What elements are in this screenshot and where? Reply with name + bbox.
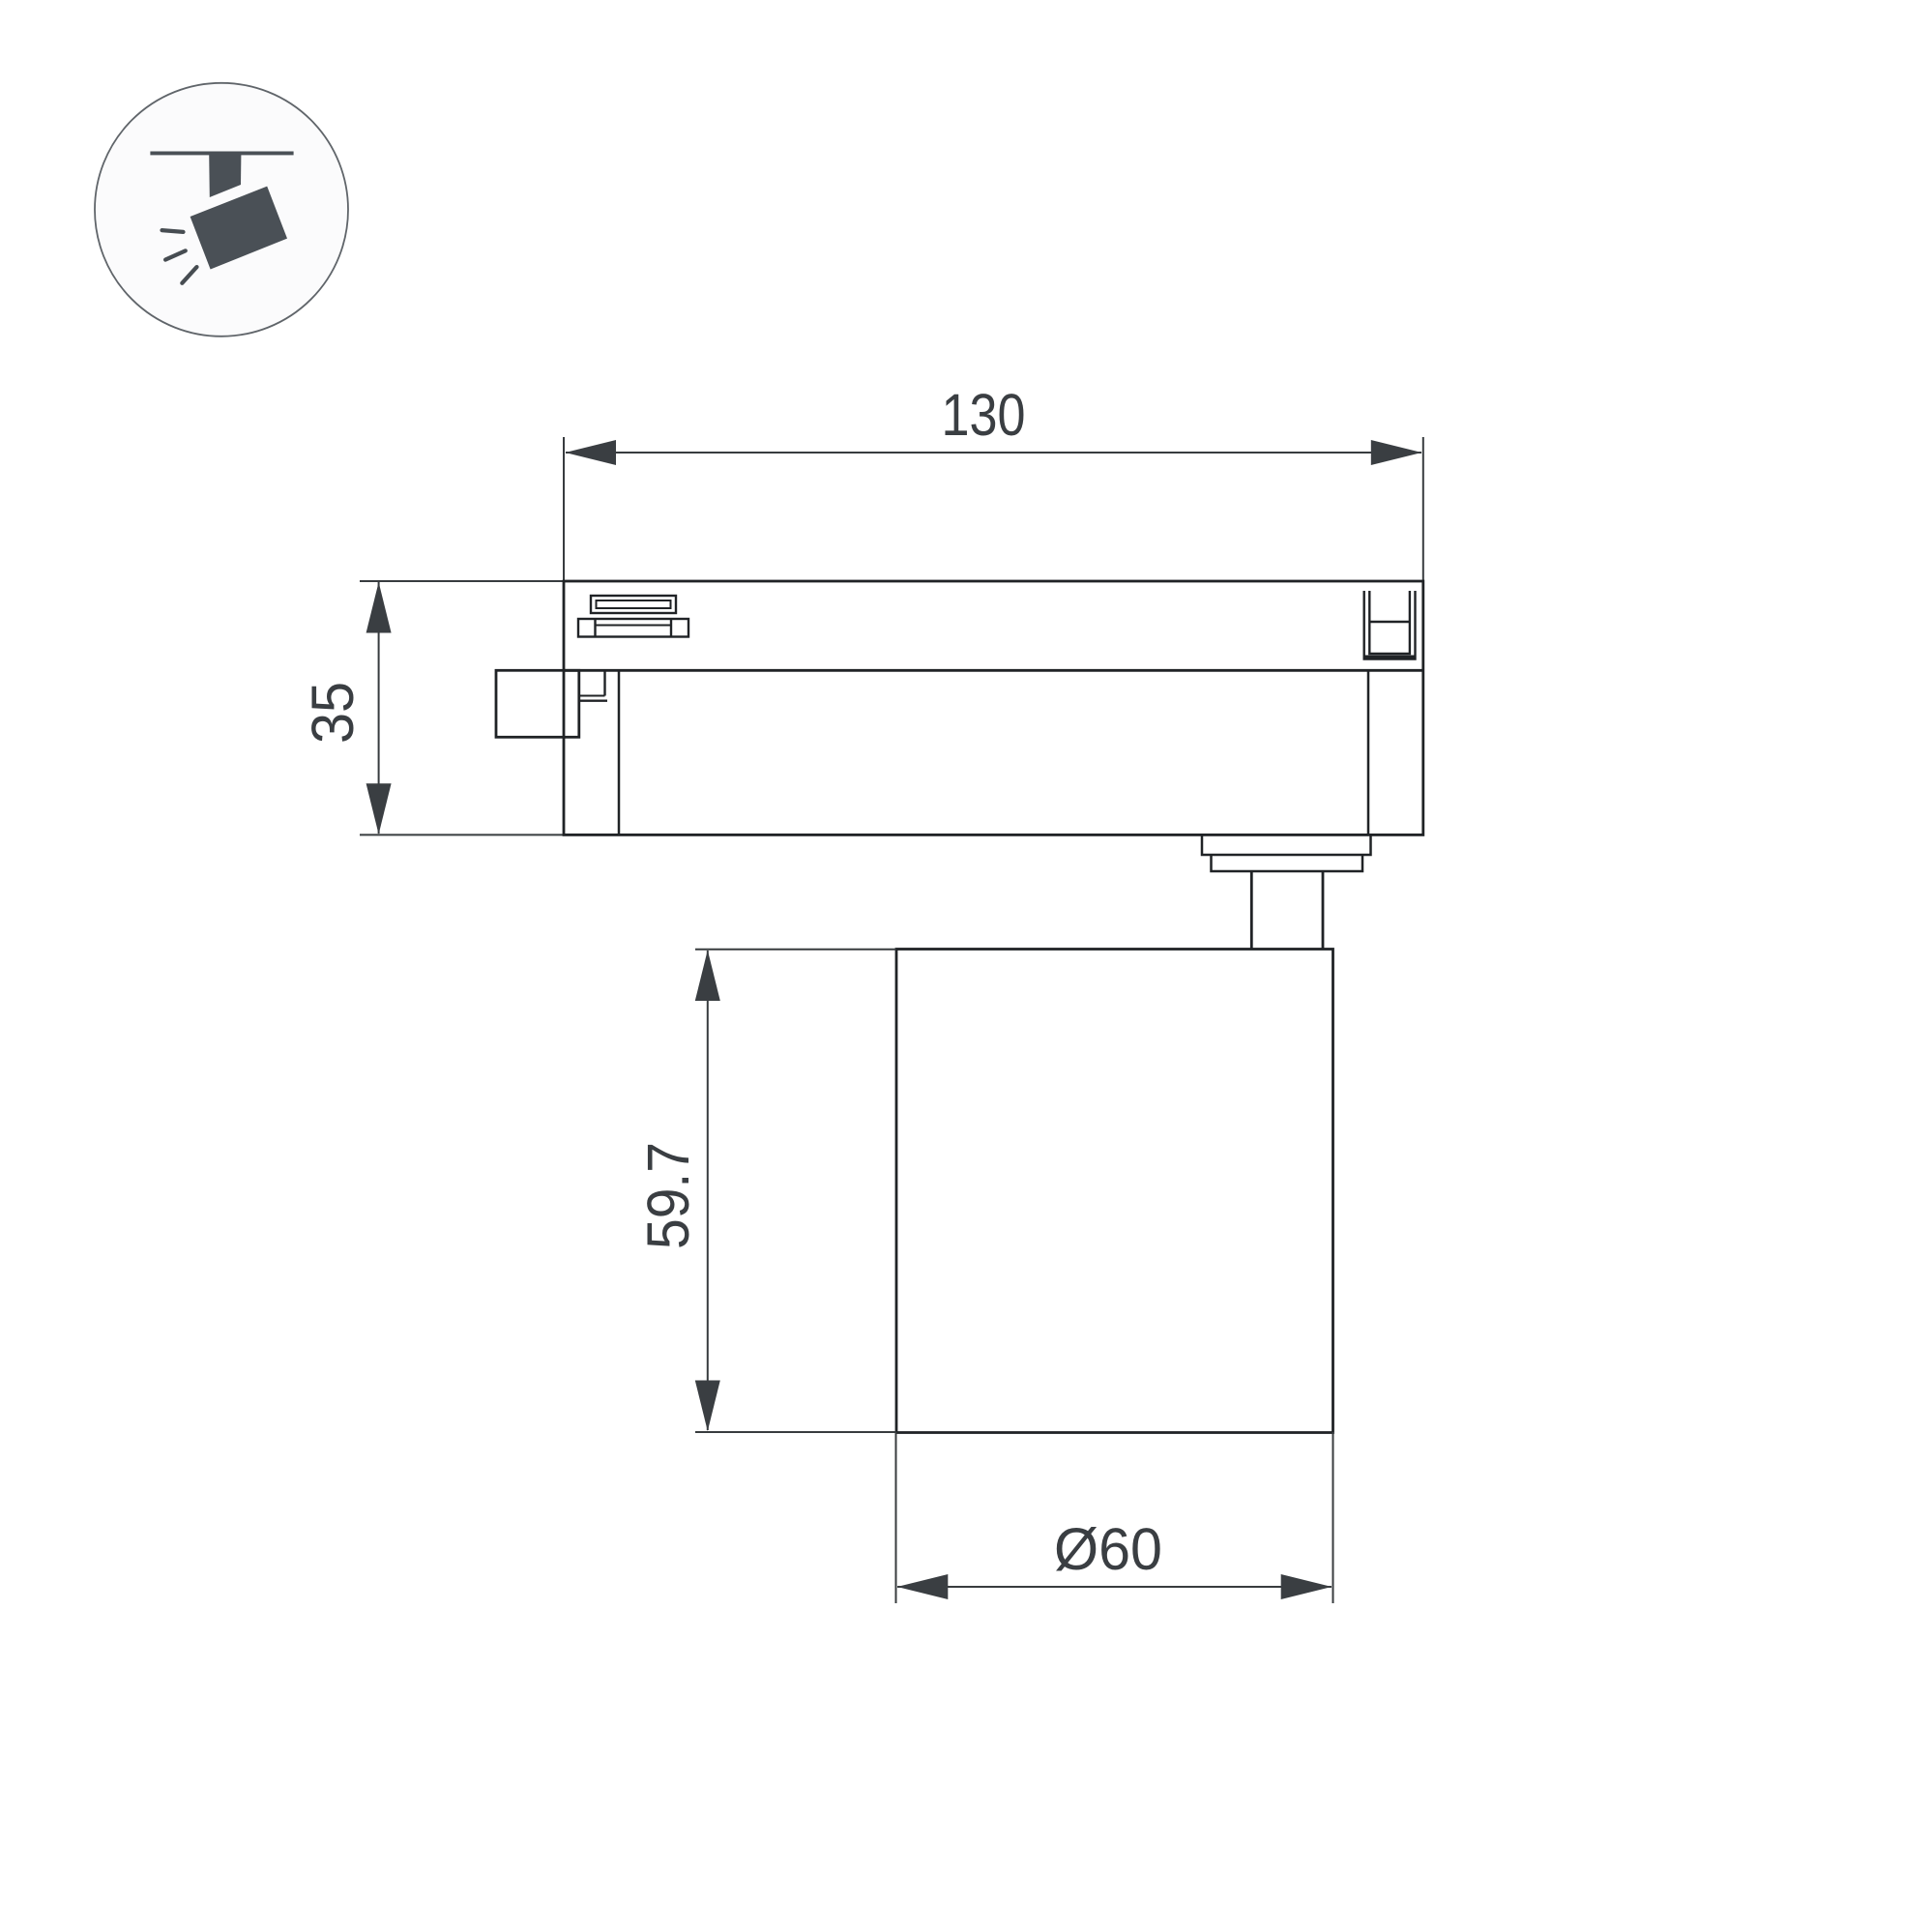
svg-text:59.7: 59.7 — [635, 1142, 702, 1249]
svg-text:Ø60: Ø60 — [1054, 1516, 1162, 1583]
svg-text:130: 130 — [942, 382, 1026, 449]
svg-text:35: 35 — [300, 682, 366, 744]
